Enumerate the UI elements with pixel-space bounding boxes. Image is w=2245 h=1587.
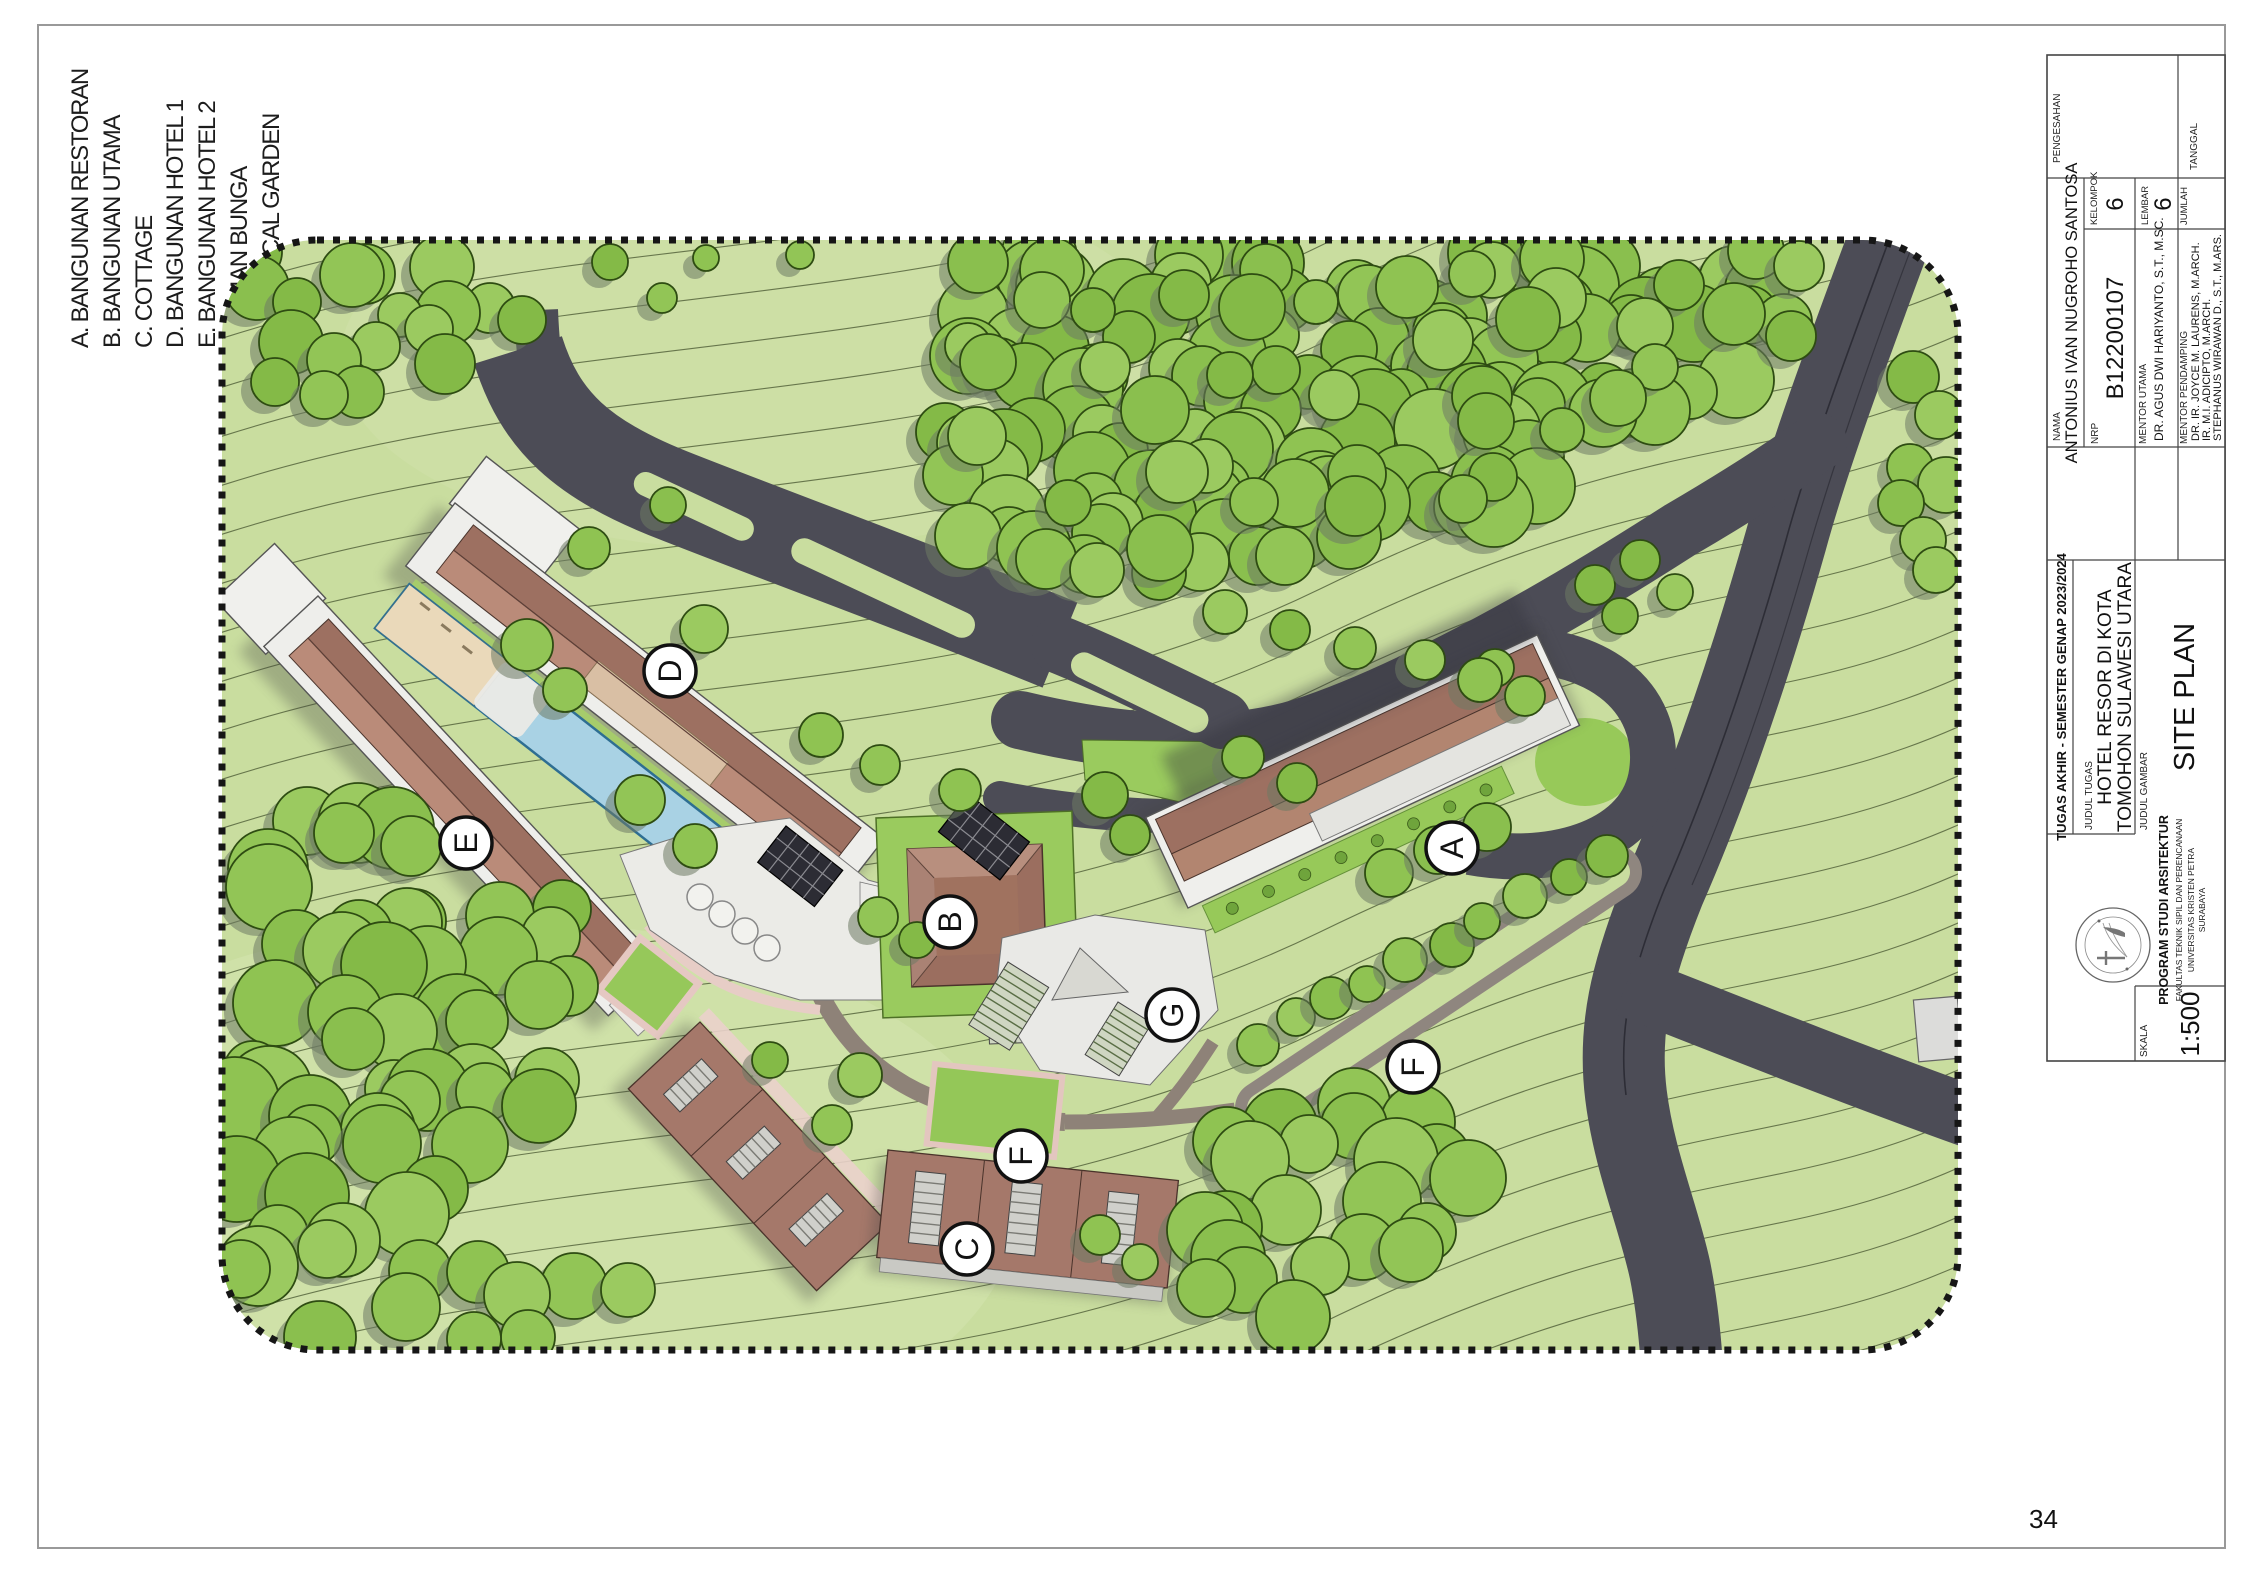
svg-text:D. BANGUNAN HOTEL 1: D. BANGUNAN HOTEL 1 xyxy=(162,99,189,348)
svg-text:TOMOHON SULAWESI UTARA: TOMOHON SULAWESI UTARA xyxy=(2115,562,2136,832)
svg-text:6: 6 xyxy=(2102,197,2129,210)
svg-text:UNIVERSITAS KRISTEN PETRA: UNIVERSITAS KRISTEN PETRA xyxy=(2186,848,2196,973)
svg-text:B12200107: B12200107 xyxy=(2102,277,2129,400)
svg-text:34: 34 xyxy=(2029,1504,2058,1534)
svg-text:F: F xyxy=(1395,1057,1431,1077)
svg-text:FAKULTAS TEKNIK SIPIL DAN PERE: FAKULTAS TEKNIK SIPIL DAN PERENCANAAN xyxy=(2174,819,2184,1002)
svg-text:JUDUL TUGAS: JUDUL TUGAS xyxy=(2084,761,2095,830)
svg-text:B. BANGUNAN UTAMA: B. BANGUNAN UTAMA xyxy=(99,115,126,348)
svg-text:TANGGAL: TANGGAL xyxy=(2189,123,2200,170)
svg-text:DR. AGUS DWI HARIYANTO, S.T.,: DR. AGUS DWI HARIYANTO, S.T., M.SC. xyxy=(2152,217,2166,441)
svg-text:JUDUL GAMBAR: JUDUL GAMBAR xyxy=(2139,752,2150,830)
svg-text:SKALA: SKALA xyxy=(2139,1024,2150,1057)
svg-text:C. COTTAGE: C. COTTAGE xyxy=(131,216,158,348)
svg-text:E: E xyxy=(448,832,484,853)
svg-text:A: A xyxy=(1434,837,1470,859)
svg-text:A. BANGUNAN RESTORAN: A. BANGUNAN RESTORAN xyxy=(67,69,94,348)
svg-text:PENGESAHAN: PENGESAHAN xyxy=(2052,94,2063,163)
svg-text:B: B xyxy=(932,911,968,932)
svg-text:JUMLAH: JUMLAH xyxy=(2179,187,2190,225)
svg-text:PROGRAM STUDI ARSITEKTUR: PROGRAM STUDI ARSITEKTUR xyxy=(2157,815,2171,1005)
svg-text:6: 6 xyxy=(2150,197,2177,210)
svg-text:NAMA: NAMA xyxy=(2052,412,2063,441)
svg-text:ANTONIUS IVAN NUGROHO SANTOSA: ANTONIUS IVAN NUGROHO SANTOSA xyxy=(2063,163,2081,464)
svg-text:D: D xyxy=(652,659,688,682)
svg-text:TUGAS AKHIR - SEMESTER GENAP 2: TUGAS AKHIR - SEMESTER GENAP 2023/2024 xyxy=(2054,552,2069,840)
svg-text:G: G xyxy=(1154,1003,1190,1028)
svg-text:SITE PLAN: SITE PLAN xyxy=(2169,623,2201,771)
svg-text:C: C xyxy=(949,1237,985,1260)
svg-text:MENTOR UTAMA: MENTOR UTAMA xyxy=(2138,363,2149,444)
svg-text:KELOMPOK: KELOMPOK xyxy=(2089,171,2100,225)
svg-text:MENTOR PENDAMPING: MENTOR PENDAMPING xyxy=(2179,331,2190,444)
svg-text:NRP: NRP xyxy=(2090,423,2101,444)
svg-text:F: F xyxy=(1003,1146,1039,1166)
svg-text:STEPHANUS WIRAWAN D., S.T., M.: STEPHANUS WIRAWAN D., S.T., M.ARS. xyxy=(2212,234,2224,441)
svg-text:E. BANGUNAN HOTEL 2: E. BANGUNAN HOTEL 2 xyxy=(194,101,221,348)
svg-text:SURABAYA: SURABAYA xyxy=(2197,887,2207,932)
svg-text:HOTEL RESOR DI KOTA: HOTEL RESOR DI KOTA xyxy=(2095,589,2116,805)
